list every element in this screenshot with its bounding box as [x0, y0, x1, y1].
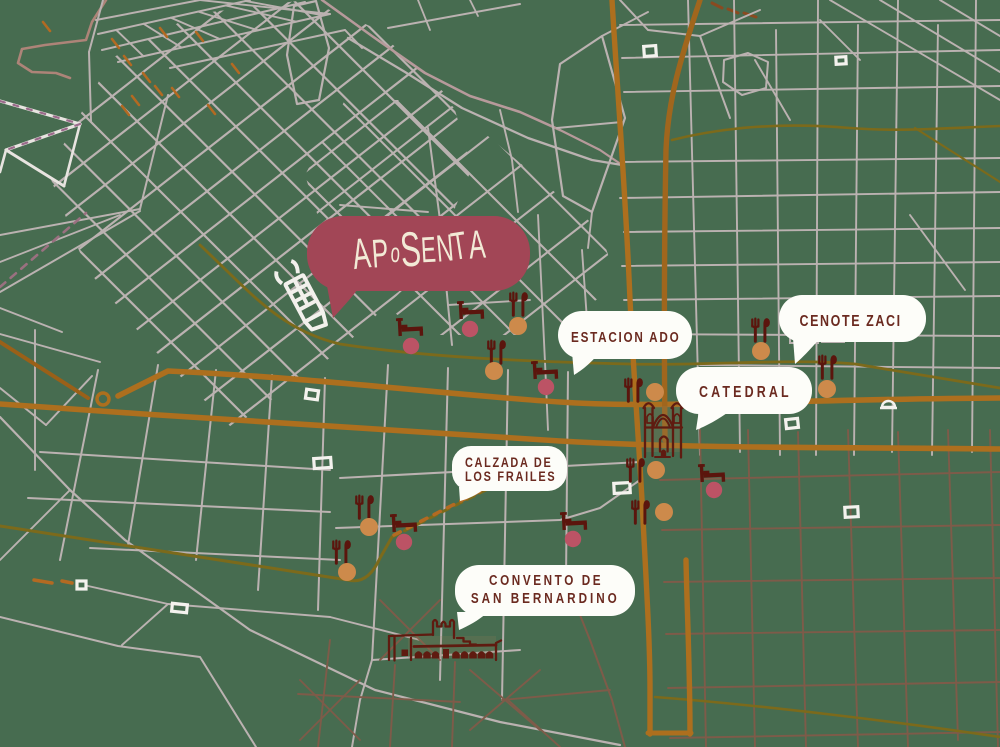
- svg-text:CENOTE ZACI: CENOTE ZACI: [800, 313, 903, 331]
- svg-text:LOS FRAILES: LOS FRAILES: [465, 469, 557, 485]
- svg-text:o: o: [390, 238, 400, 268]
- svg-text:E: E: [420, 230, 437, 270]
- svg-text:CATEDRAL: CATEDRAL: [699, 384, 791, 402]
- svg-text:SAN BERNARDINO: SAN BERNARDINO: [471, 590, 619, 607]
- svg-text:CONVENTO DE: CONVENTO DE: [489, 572, 603, 589]
- svg-text:P: P: [370, 232, 390, 278]
- svg-text:ESTACION ADO: ESTACION ADO: [571, 329, 681, 346]
